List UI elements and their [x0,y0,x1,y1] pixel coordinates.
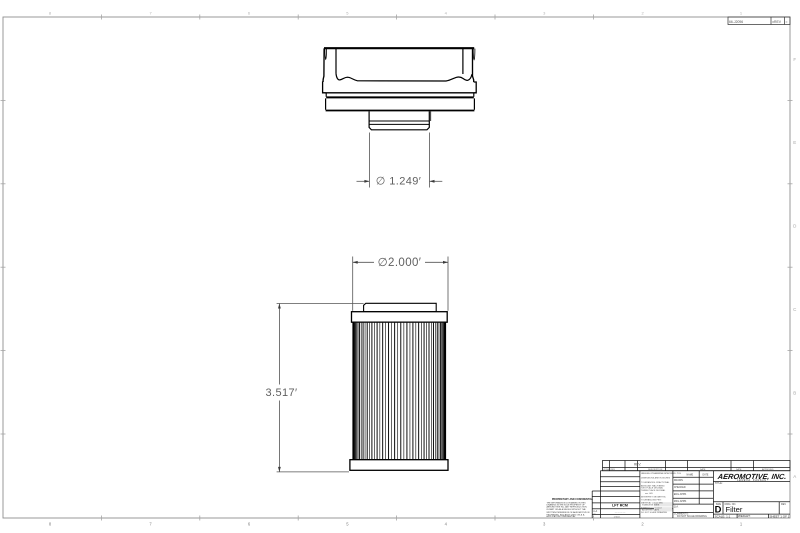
svg-text:UNLESS OTHERWISE SPECIFIED: TO: UNLESS OTHERWISE SPECIFIED: TOL [641,473,682,475]
svg-text:TOLERANCING PER:: TOLERANCING PER: [641,498,662,501]
svg-text:SHEET 1 OF 1: SHEET 1 OF 1 [770,514,790,518]
svg-text:PROPRIETARY AND CONFIDENTIAL: PROPRIETARY AND CONFIDENTIAL [552,498,594,501]
svg-text:— — — —: — — — — [615,512,626,514]
svg-text:LENEXA, KANSAS: LENEXA, KANSAS [737,478,766,482]
svg-text:DIMENSIONS ARE IN INCHES: DIMENSIONS ARE IN INCHES [641,476,671,479]
svg-text:CHECKED: CHECKED [674,486,686,489]
svg-text:IN PART OR AS A WHOLE WITHOUT: IN PART OR AS A WHOLE WITHOUT THE [547,508,587,511]
svg-text:DATE: DATE [703,473,709,476]
svg-text:MFG APPR.: MFG APPR. [674,500,687,503]
svg-text:xREV: xREV [772,20,781,24]
svg-text:WRITTEN PERMISSION OF AEROMOTI: WRITTEN PERMISSION OF AEROMOTIVE IN [547,511,590,514]
svg-text:Filter: Filter [726,505,743,514]
svg-text:TOLERANCES: FRACTIONAL: TOLERANCES: FRACTIONAL [641,481,670,484]
svg-text:xxx .005: xxx .005 [645,493,654,495]
svg-text:WEIGHT:: WEIGHT: [738,514,751,518]
svg-text:A: A [793,474,796,479]
svg-text:∅ 1.249′: ∅ 1.249′ [376,175,421,187]
svg-text:REV: REV [781,503,786,506]
svg-text:TITLE:: TITLE: [715,481,723,485]
svg-text:INTERPRET GEOMETRIC: INTERPRET GEOMETRIC [641,497,666,499]
svg-text:B: B [793,391,796,396]
svg-text:THREE PLACE DECIMAL: THREE PLACE DECIMAL [641,489,666,492]
svg-text:Q.A.: Q.A. [674,506,679,509]
svg-text:D: D [715,504,722,515]
svg-text:=: = [786,20,788,24]
svg-text:DO NOT SCALE DRAWING: DO NOT SCALE DRAWING [641,511,667,514]
svg-text:STAINLESS WIRE: STAINLESS WIRE [642,504,660,507]
svg-text:DO NOT SCALE DRAWING: DO NOT SCALE DRAWING [677,515,707,518]
svg-text:DRAWN: DRAWN [674,479,683,482]
svg-text:APPLICATION CONFIDENTIAL: APPLICATION CONFIDENTIAL [547,515,577,518]
svg-text:SCALE: 1:1: SCALE: 1:1 [715,514,731,518]
svg-text:66-J2096: 66-J2096 [729,20,743,24]
svg-text:LFT RCM: LFT RCM [612,504,628,508]
svg-text:F: F [793,57,796,62]
svg-text:1 W.O.: 1 W.O. [614,516,621,518]
svg-text:NAME: NAME [687,473,694,476]
svg-text:E: E [793,140,796,145]
svg-text:3.517′: 3.517′ [266,387,298,399]
svg-text:ENG APPR.: ENG APPR. [674,493,687,496]
svg-text:∅2.000′: ∅2.000′ [378,257,422,269]
svg-text:REV:: REV: [634,462,641,466]
svg-text:AEROMOTIVE INC. ANY REPRODUCT: AEROMOTIVE INC. ANY REPRODUCTION [547,506,588,509]
svg-text:ALUM END CAPS: ALUM END CAPS [642,509,660,512]
